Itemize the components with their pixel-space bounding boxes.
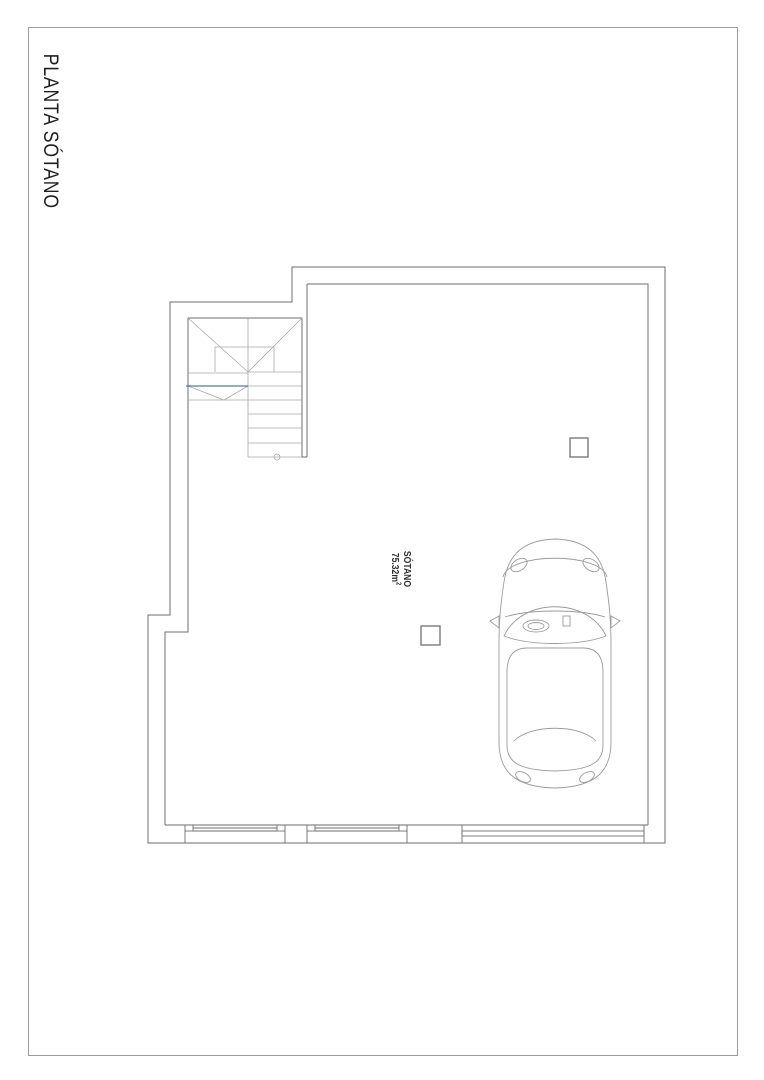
window-openings xyxy=(185,825,407,843)
window-jamb xyxy=(277,825,285,831)
side-mirror xyxy=(490,616,499,628)
room-label: SÓTANO 75.32m2 xyxy=(388,545,412,593)
side-mirror xyxy=(611,616,620,628)
car xyxy=(490,539,620,788)
room-name: SÓTANO xyxy=(401,545,413,593)
window-jamb xyxy=(399,825,407,831)
floor-plan-drawing xyxy=(0,0,764,1080)
staircase xyxy=(188,318,302,460)
headlight xyxy=(580,555,601,574)
structural-columns xyxy=(421,438,588,645)
headlight xyxy=(508,555,529,574)
window-jamb xyxy=(185,825,193,831)
column xyxy=(421,626,440,645)
room-area: 75.32m2 xyxy=(389,545,401,593)
window-jamb xyxy=(307,825,315,831)
garage-door xyxy=(462,825,644,843)
column xyxy=(570,438,588,457)
console-detail xyxy=(563,616,570,626)
steering-wheel-hub xyxy=(528,623,544,630)
steering-wheel xyxy=(523,620,549,632)
